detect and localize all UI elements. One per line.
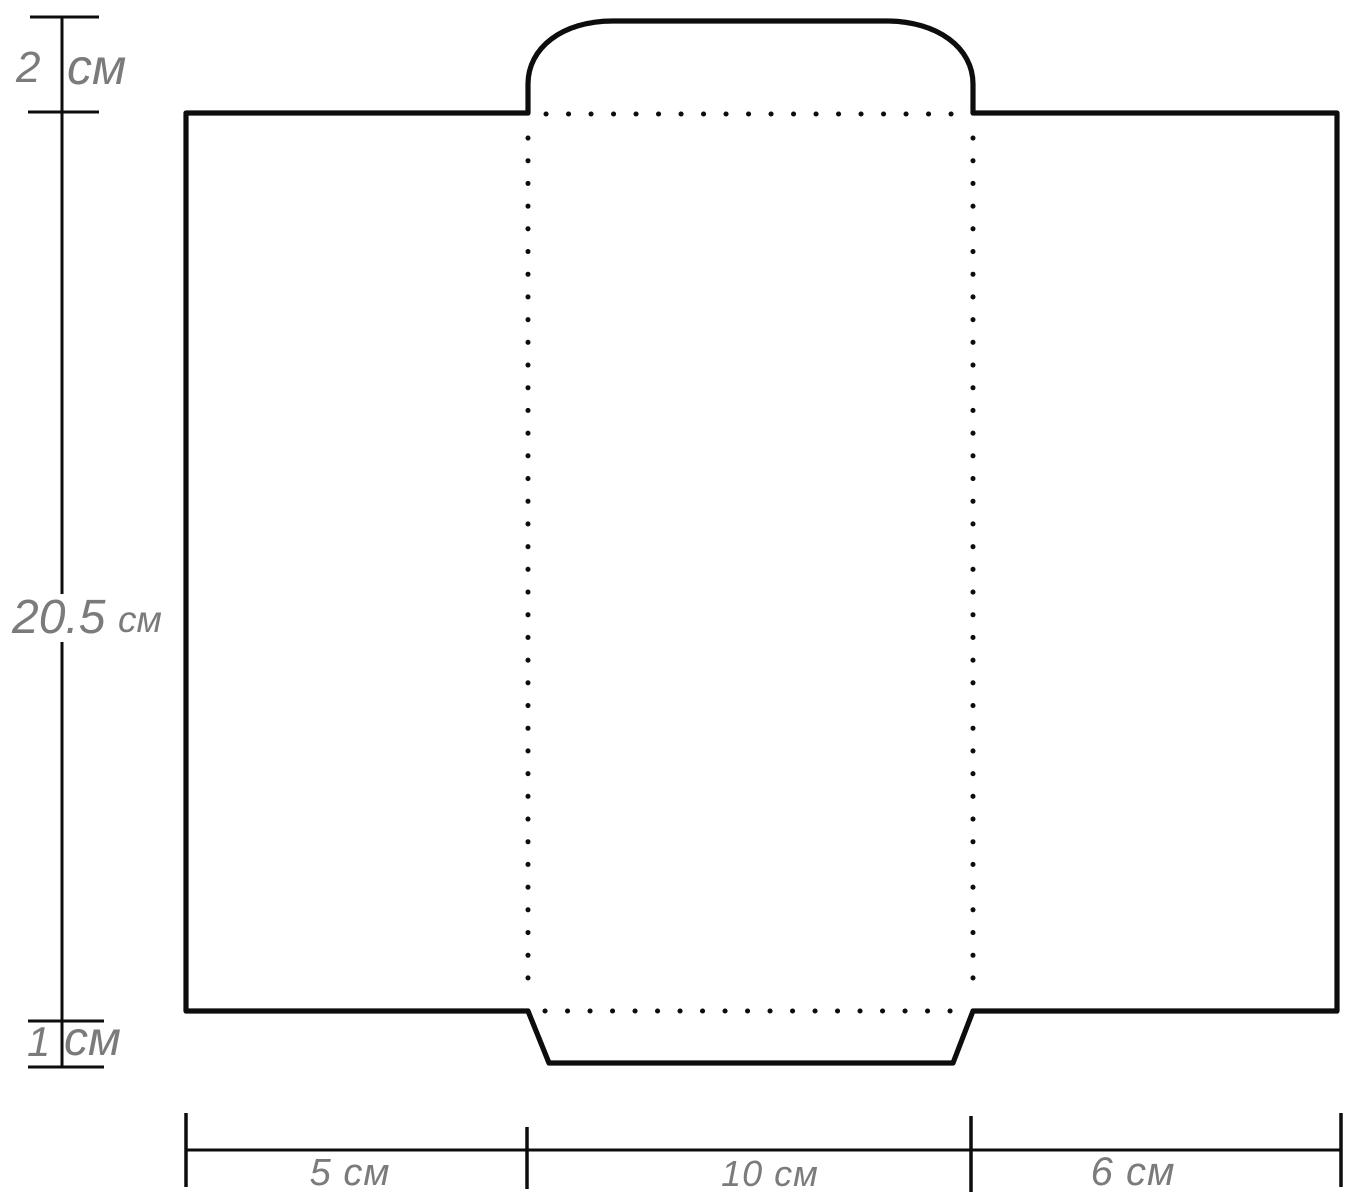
envelope-outline — [186, 21, 1337, 1063]
dim-panel-left-width: 5 см — [270, 1154, 430, 1192]
dim-body-height-unit: см — [118, 601, 162, 638]
dim-bottom-flap-unit: см — [64, 1016, 121, 1064]
dim-top-flap-unit: см — [67, 42, 126, 92]
envelope-template-figure: 2 см 20.5 см 1 см 5 см 10 см 6 см — [0, 0, 1361, 1200]
dim-top-flap-value: 2 — [16, 46, 40, 90]
dim-bottom-flap-value: 1 — [27, 1021, 50, 1063]
dim-panel-right-width: 6 см — [1053, 1152, 1213, 1192]
template-drawing — [0, 0, 1361, 1200]
dim-panel-center-width: 10 см — [690, 1156, 850, 1192]
dim-body-height-value: 20.5 — [10, 594, 107, 642]
